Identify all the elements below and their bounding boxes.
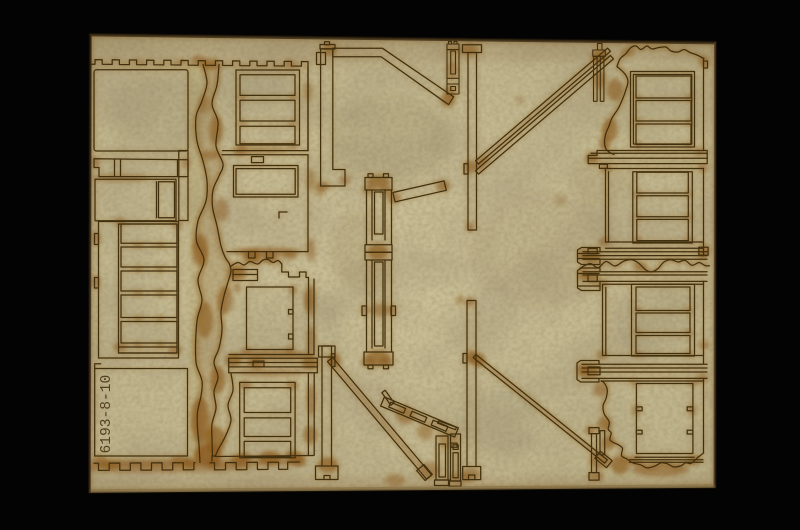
svg-text:6193-8-10: 6193-8-10 bbox=[99, 375, 115, 454]
